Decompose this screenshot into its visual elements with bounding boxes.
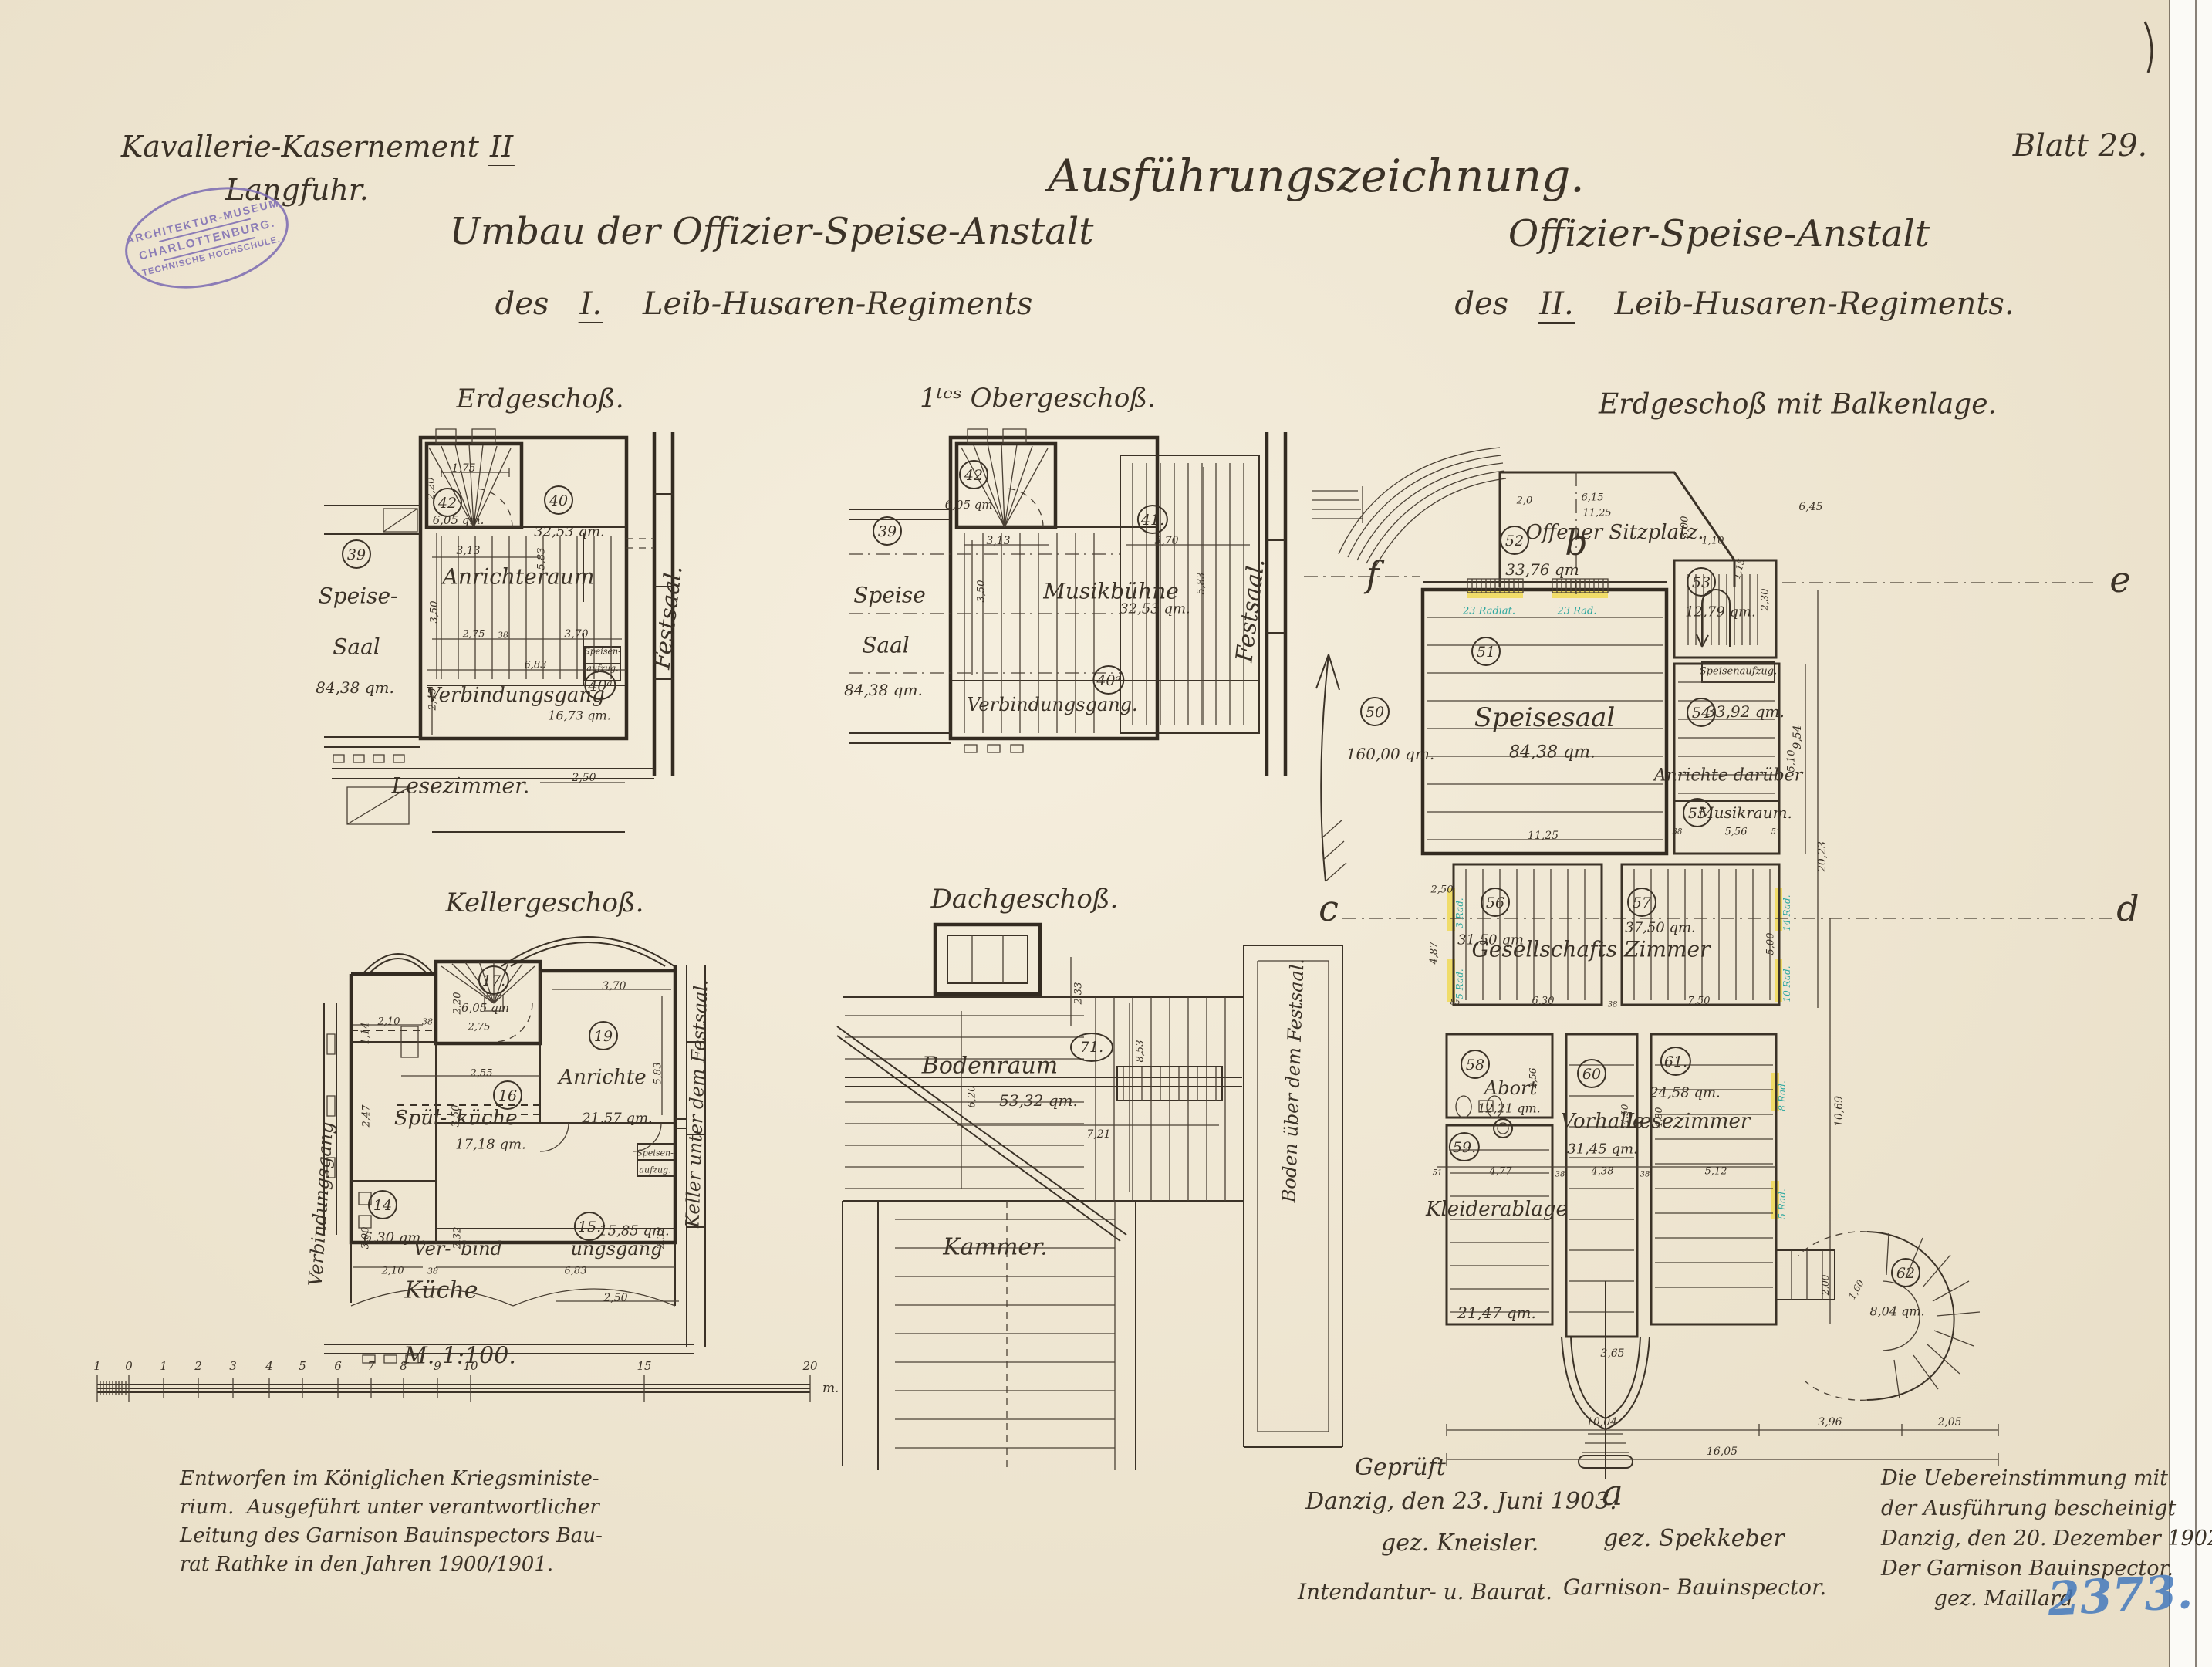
p1-room40a-circle: 40ᵃ <box>584 671 616 700</box>
p5-radiator-note: 5 Rad. <box>1777 1189 1788 1219</box>
dim-label: 3,13 <box>456 545 480 557</box>
dim-label: 51 <box>1771 828 1781 837</box>
dim-label: 5,00 <box>1765 933 1777 955</box>
design-note: Entworfen im Königlichen Kriegsministe-r… <box>180 1465 603 1579</box>
dim-label: 6,05 qm. <box>433 513 485 527</box>
title-right-regiment-number: II. <box>1538 286 1575 324</box>
title-left-line2: des I. Leib-Husaren-Regiments <box>495 286 1033 322</box>
dim-label: 2,50 <box>603 1292 627 1304</box>
dim-label: 3,00 <box>1680 516 1691 539</box>
dim-label: 3,70 <box>1154 535 1178 547</box>
dim-label: 4,87 <box>1429 942 1440 965</box>
project-name: Kavallerie-Kasernement <box>121 130 479 164</box>
p5-section-f: f <box>1366 553 1379 595</box>
dim-label: 37,50 qm. <box>1625 920 1696 936</box>
dim-label: 6,05 qm. <box>945 498 997 512</box>
p5-radiator-note: 14 Rad. <box>1781 894 1792 931</box>
dim-label: 4,80 <box>1653 1107 1664 1128</box>
dim-label: 1,75 <box>451 462 475 475</box>
p3-room16-circle: 16 <box>493 1080 522 1110</box>
dim-label: 2,0 <box>1517 495 1533 507</box>
scale-tick-label: 4 <box>265 1359 273 1373</box>
dim-label: 84,38 qm. <box>316 678 394 697</box>
dim-label: Speise <box>853 583 926 608</box>
p2-room39-circle: 39 <box>873 516 902 546</box>
dim-label: 6,15 <box>1582 492 1604 504</box>
p4-bodenraum: Bodenraum <box>922 1053 1058 1080</box>
title-left-line1: Umbau der Offizier-Speise-Anstalt <box>449 210 1093 253</box>
dim-label: Saal <box>862 633 910 658</box>
dim-label: 2,45 <box>427 688 439 711</box>
p3-room17-circle: 17. <box>478 965 509 995</box>
p4-title: Dachgeschoß. <box>931 884 1119 915</box>
dim-label: 7,50 <box>1688 996 1711 1007</box>
dim-label: 2,33 <box>1073 982 1085 1005</box>
dim-label: 51 <box>1433 1169 1443 1178</box>
p4-room71-circle: 71. <box>1070 1033 1113 1062</box>
title-right-line1: Offizier-Speise-Anstalt <box>1508 212 1930 255</box>
dim-label: 3,00 <box>360 1227 372 1249</box>
dim-label: 3,50 <box>976 580 988 603</box>
scale-tick-label: 20 <box>802 1359 817 1373</box>
dim-label: 38 <box>427 1266 438 1276</box>
p5-room50-circle: 50 <box>1360 697 1390 726</box>
p5-room51-circle: 51 <box>1471 637 1501 666</box>
dim-label: 3,96 <box>1818 1416 1842 1429</box>
p3-verbind-2: bind <box>461 1238 502 1260</box>
dim-label: 12,21 qm. <box>1477 1101 1540 1116</box>
approval-signature-2: gez. Spekkeber <box>1603 1525 1785 1552</box>
dim-label: 85 <box>1450 999 1461 1007</box>
p5-title: Erdgeschoß mit Balkenlage. <box>1599 389 1997 421</box>
title-right-line2: des II. Leib-Husaren-Regiments. <box>1454 286 2014 322</box>
dim-label: 3,50 <box>451 1105 462 1128</box>
dim-label: 3,70 <box>564 628 588 641</box>
scale-tick-label: 15 <box>637 1359 651 1373</box>
dim-label: 10,69 <box>1833 1096 1846 1127</box>
p5-section-c: c <box>1319 888 1339 929</box>
project-number: II <box>488 130 515 166</box>
dim-label: 6,05 qm <box>461 1001 509 1015</box>
dim-label: 4,77 <box>1490 1166 1512 1178</box>
dim-label: 5,83 <box>653 1063 664 1085</box>
sheet-number: Blatt 29. <box>2013 128 2148 164</box>
dim-label: 2,50 <box>1431 884 1454 896</box>
p5-room56-circle: 56 <box>1481 888 1510 917</box>
text-line: Leitung des Garnison Bauinspectors Bau- <box>180 1522 603 1550</box>
dim-label: 6,45 <box>1798 501 1822 513</box>
dim-label: Speisen- <box>637 1148 674 1158</box>
title-left-pre: des <box>495 286 549 322</box>
dim-label: 160,00 qm. <box>1346 745 1434 763</box>
dim-label: 38 <box>1673 828 1683 837</box>
scale-label: M. 1:100. <box>404 1343 516 1370</box>
dim-label: 2,56 <box>1528 1068 1538 1089</box>
p1-lesezimmer: Lesezimmer. <box>392 773 530 799</box>
dim-label: 1,10 <box>1702 536 1724 547</box>
dim-label: 4,38 <box>1592 1166 1614 1178</box>
dim-label: 32,53 qm. <box>534 524 605 540</box>
approval-signature-1: gez. Kneisler. <box>1381 1530 1538 1557</box>
dim-label: 1,14 <box>360 1023 372 1045</box>
dim-label: 5,12 <box>1705 1166 1727 1178</box>
drawing-sheet: Kavallerie-Kasernement II Langfuhr. ARCH… <box>0 0 2212 1667</box>
p5-section-e: e <box>2109 559 2130 600</box>
dim-label: 31,45 qm. <box>1567 1141 1638 1158</box>
dim-label: 2,30 <box>1760 589 1771 611</box>
p3-spuelkueche-2: küche <box>456 1107 517 1130</box>
scale-unit: m. <box>822 1381 839 1396</box>
p2-room42-circle: 42 <box>959 460 988 489</box>
dim-label: 6,20 <box>967 1086 978 1108</box>
dim-label: 38 <box>1608 1001 1618 1009</box>
p5-room60-circle: 60 <box>1577 1059 1606 1088</box>
p5-room53-circle: 53 <box>1687 567 1716 597</box>
p5-room58-circle: 58 <box>1461 1050 1490 1079</box>
p3-room19-circle: 19 <box>589 1021 618 1050</box>
dim-label: 3,65 <box>1600 1347 1624 1360</box>
dim-label: 2,50 <box>572 772 596 784</box>
p5-speisesaal: Speisesaal <box>1474 702 1615 733</box>
p5-room52-circle: 52 <box>1500 526 1529 555</box>
dim-label: 8,53 <box>1135 1040 1147 1063</box>
dim-label: 38 <box>1640 1171 1650 1179</box>
p5-room61-circle: 61. <box>1660 1047 1691 1076</box>
p5-radiator-note: 8 Rad. <box>1777 1080 1788 1111</box>
text-line: rium. Ausgeführt unter verantwortlicher <box>180 1493 603 1522</box>
dim-label: 2,05 <box>1937 1416 1961 1429</box>
scale-tick-label: 8 <box>400 1359 407 1373</box>
dim-label: 12,79 qm. <box>1685 604 1756 620</box>
p5-kleiderablage: Kleiderablage <box>1426 1198 1568 1221</box>
dim-label: 2,10 <box>378 1016 400 1028</box>
text-line: der Ausführung bescheinigt <box>1881 1493 2212 1523</box>
dim-label: 8,04 qm. <box>1869 1304 1924 1319</box>
dim-label: 2,00 <box>1820 1275 1831 1296</box>
title-right-pre: des <box>1454 286 1508 322</box>
scale-bar <box>97 1375 810 1402</box>
text-line: rat Rathke in den Jahren 1900/1901. <box>180 1550 603 1579</box>
p5-radiator-note: 23 Radiat. <box>1463 606 1515 617</box>
approval-date: Danzig, den 23. Juni 1903. <box>1305 1488 1617 1515</box>
scale-tick-label: 9 <box>434 1359 441 1373</box>
dim-label: 21,57 qm. <box>582 1111 653 1127</box>
scale-tick-label: 10 <box>463 1359 478 1373</box>
dim-label: 3,70 <box>602 980 626 992</box>
dim-label: 16,05 <box>1707 1446 1738 1458</box>
p5-room59-circle: 59. <box>1449 1132 1480 1161</box>
approval-role-2: Garnison- Bauinspector. <box>1563 1574 1826 1600</box>
p5-radiator-note: 5 Rad. <box>1454 969 1465 999</box>
approval-title: Geprüft <box>1355 1454 1446 1481</box>
p3-spuelkueche-1: Spül- <box>394 1107 447 1130</box>
p5-radiator-note: 3 Rad. <box>1454 898 1465 928</box>
dim-label: 5,83 <box>1196 573 1207 595</box>
p2-room41-circle: 41. <box>1137 505 1168 534</box>
p5-musikraum: Musikraum. <box>1698 803 1792 822</box>
p2-verbindungsgang: Verbindungsgang. <box>967 694 1137 715</box>
inventory-number: 2373. <box>2046 1565 2193 1627</box>
drawing-type-title: Ausführungszeichnung. <box>1048 150 1584 202</box>
p5-lesezimmer: Lesezimmer <box>1626 1110 1751 1133</box>
p3-verbind-3: ungsgang <box>570 1238 662 1260</box>
p4-kammer: Kammer. <box>943 1234 1048 1261</box>
dim-label: 9,54 <box>1792 725 1804 749</box>
dim-label: 2,55 <box>471 1068 493 1080</box>
p5-gesellschaftszimmer: Gesellschafts Zimmer <box>1472 937 1711 962</box>
dim-label: 10,04 <box>1586 1416 1617 1429</box>
dim-label: 3,50 <box>429 601 441 624</box>
p5-section-b: b <box>1565 522 1587 563</box>
p5-section-d: d <box>2116 888 2139 929</box>
scale-tick-label: 6 <box>334 1359 342 1373</box>
scale-tick-label: 1 <box>93 1359 101 1373</box>
dim-label: 7,21 <box>1086 1128 1110 1141</box>
dim-label: 2,32 <box>452 1227 464 1249</box>
dim-label: 24,58 qm. <box>1650 1085 1721 1101</box>
scale-tick-label: 0 <box>125 1359 133 1373</box>
scale-tick-label: 7 <box>367 1359 375 1373</box>
p1-title: Erdgeschoß. <box>456 384 623 414</box>
scale-tick-label: 2 <box>194 1359 202 1373</box>
dim-label: 33,92 qm. <box>1706 702 1785 721</box>
p2-title: 1ᵗᵉˢ Obergeschoß. <box>920 383 1156 414</box>
p1-room39-circle: 39 <box>342 539 371 569</box>
p1-speisesaal-1: Speise- <box>318 583 397 609</box>
title-left-regiment-number: I. <box>579 286 604 323</box>
text-line: Danzig, den 20. Dezember 1902 <box>1881 1523 2212 1554</box>
p3-kueche: Küche <box>405 1277 478 1304</box>
title-right-rest: Leib-Husaren-Regiments. <box>1615 286 2014 322</box>
dim-label: 2,20 <box>452 992 464 1015</box>
p3-verbind-1: Ver- <box>414 1238 451 1260</box>
dim-label: 38 <box>422 1017 433 1027</box>
dim-label: 53,32 qm. <box>999 1091 1078 1110</box>
p5-anrichte-darueber: Anrichte darüber <box>1654 766 1802 786</box>
p5-speisenaufzug: Speisenaufzug. <box>1700 666 1777 678</box>
dim-label: 38 <box>1555 1171 1565 1179</box>
dim-label: 20,23 <box>1816 841 1829 872</box>
dim-label: 84,38 qm. <box>844 681 923 699</box>
dim-label: 3,13 <box>986 535 1010 547</box>
dim-label: 2,20 <box>426 478 437 500</box>
dim-label: Speisen- <box>584 647 621 657</box>
p1-verbindungsgang: Verbindungsgang <box>426 684 605 707</box>
dim-label: 6,83 <box>565 1266 587 1277</box>
dim-label: 5,56 <box>1725 827 1748 838</box>
dim-label: 2,75 <box>463 629 485 641</box>
dim-label: 2,47 <box>361 1105 373 1128</box>
plan-dachgeschoss <box>837 925 1342 1470</box>
dim-label: 16,73 qm. <box>548 708 610 723</box>
dim-label: 17,18 qm. <box>455 1137 526 1153</box>
p3-anrichte: Anrichte <box>559 1066 646 1089</box>
dim-label: 11,25 <box>1528 830 1559 842</box>
text-line: Entworfen im Königlichen Kriegsministe- <box>180 1465 603 1493</box>
p1-speisesaal-2: Saal <box>333 634 380 660</box>
dim-label: 84,38 qm. <box>1509 743 1596 762</box>
scale-tick-label: 5 <box>299 1359 306 1373</box>
p5-radiator-note: 23 Rad. <box>1558 606 1597 617</box>
dim-label: 32,53 qm. <box>1120 601 1190 617</box>
dim-label: 2,10 <box>382 1266 404 1277</box>
p1-room40-circle: 40 <box>544 485 573 515</box>
dim-label: 5,83 <box>536 548 548 570</box>
dim-label: 6,83 <box>525 660 547 671</box>
title-left-rest: Leib-Husaren-Regiments <box>643 286 1032 322</box>
dim-label: 2,75 <box>468 1022 491 1033</box>
p5-sitzplatz: Offener Sitzplatz. <box>1525 521 1704 544</box>
text-line: Die Uebereinstimmung mit <box>1881 1463 2212 1493</box>
p2-room40a-circle: 40ᵃ <box>1092 665 1124 695</box>
p5-radiator-note: 10 Rad. <box>1781 965 1792 1002</box>
plan-balkenlage <box>1304 448 2114 1479</box>
p5-room57-circle: 57 <box>1627 888 1656 917</box>
dim-label: 38 <box>498 631 508 641</box>
p3-title: Kellergeschoß. <box>446 888 644 918</box>
project-title: Kavallerie-Kasernement II <box>121 130 515 164</box>
scale-tick-label: 3 <box>229 1359 237 1373</box>
paper-edge <box>2145 0 2212 1667</box>
scale-tick-label: 1 <box>160 1359 167 1373</box>
approval-role-1: Intendantur- u. Baurat. <box>1298 1579 1552 1604</box>
dim-label: 11,25 <box>1582 508 1611 519</box>
dim-label: 5,10 <box>1786 750 1798 773</box>
dim-label: aufzug. <box>639 1165 670 1175</box>
dim-label: 6,30 <box>1532 996 1555 1007</box>
dim-label: 21,47 qm. <box>1457 1304 1536 1322</box>
p1-anrichteraum: Anrichteraum <box>443 564 595 590</box>
dim-label: 2,32 <box>656 1227 667 1249</box>
p5-room62-circle: 62 <box>1891 1258 1920 1287</box>
p3-room14-circle: 14 <box>368 1190 397 1219</box>
